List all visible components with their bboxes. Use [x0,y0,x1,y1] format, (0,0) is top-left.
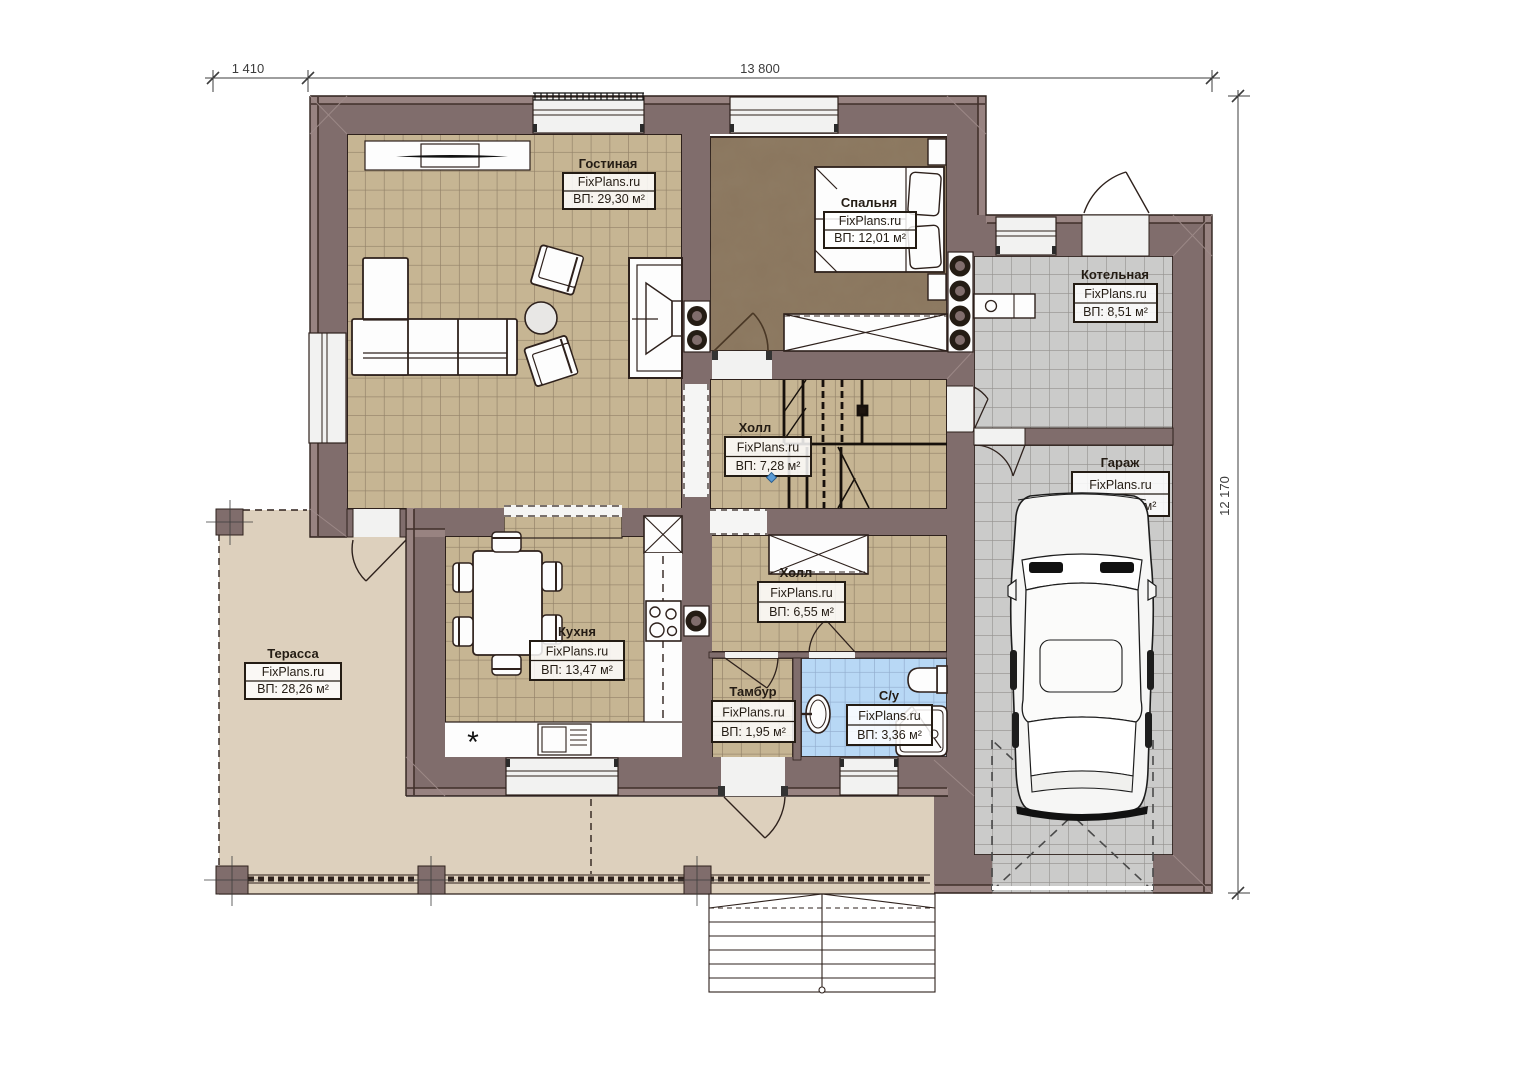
svg-text:Терасса: Терасса [267,646,319,661]
svg-text:1 410: 1 410 [232,61,265,76]
svg-text:ВП: 6,55 м²: ВП: 6,55 м² [769,605,834,619]
svg-text:FixPlans.ru: FixPlans.ru [722,706,785,720]
svg-text:FixPlans.ru: FixPlans.ru [858,709,921,723]
svg-text:ВП: 3,36 м²: ВП: 3,36 м² [857,728,922,742]
svg-text:ВП: 7,28 м²: ВП: 7,28 м² [736,459,801,473]
svg-text:ВП: 28,26 м²: ВП: 28,26 м² [257,682,329,696]
svg-text:*: * [467,726,479,759]
svg-text:Гостиная: Гостиная [579,156,638,171]
svg-text:FixPlans.ru: FixPlans.ru [262,665,325,679]
svg-text:FixPlans.ru: FixPlans.ru [839,214,902,228]
svg-text:FixPlans.ru: FixPlans.ru [737,441,800,455]
svg-text:ВП: 12,01 м²: ВП: 12,01 м² [834,231,906,245]
svg-text:ВП: 13,47 м²: ВП: 13,47 м² [541,663,613,677]
svg-text:13 800: 13 800 [740,61,780,76]
svg-text:Холл: Холл [739,420,772,435]
svg-text:С/у: С/у [879,688,900,703]
svg-text:Кухня: Кухня [558,624,596,639]
svg-text:Котельная: Котельная [1081,267,1149,282]
svg-text:FixPlans.ru: FixPlans.ru [1089,478,1152,492]
svg-text:12 170: 12 170 [1217,476,1232,516]
svg-text:ВП: 1,95 м²: ВП: 1,95 м² [721,725,786,739]
svg-text:Холл: Холл [780,565,813,580]
svg-text:FixPlans.ru: FixPlans.ru [770,586,833,600]
svg-text:Тамбур: Тамбур [729,684,776,699]
svg-text:Спальня: Спальня [841,195,897,210]
svg-text:FixPlans.ru: FixPlans.ru [578,175,641,189]
svg-text:FixPlans.ru: FixPlans.ru [546,645,609,659]
svg-text:Гараж: Гараж [1101,455,1141,470]
svg-text:FixPlans.ru: FixPlans.ru [1084,287,1147,301]
svg-text:ВП: 8,51 м²: ВП: 8,51 м² [1083,305,1148,319]
svg-text:ВП: 29,30 м²: ВП: 29,30 м² [573,192,645,206]
